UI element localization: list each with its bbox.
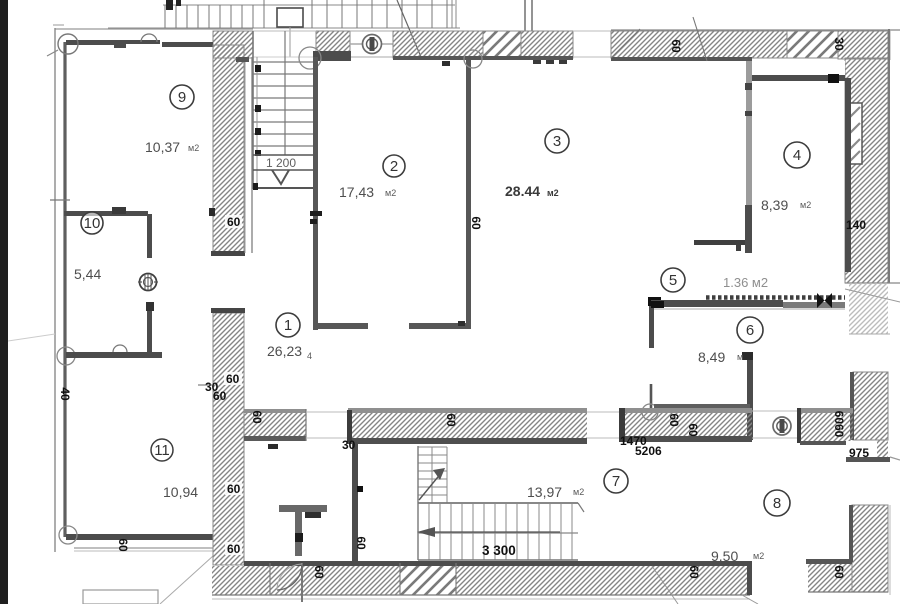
svg-text:4: 4 bbox=[307, 351, 312, 361]
svg-text:11: 11 bbox=[154, 442, 170, 459]
svg-text:1: 1 bbox=[284, 317, 292, 334]
svg-text:м2: м2 bbox=[573, 487, 584, 497]
svg-text:2: 2 bbox=[390, 158, 398, 175]
svg-text:м2: м2 bbox=[188, 143, 199, 153]
svg-text:13,97: 13,97 bbox=[527, 484, 562, 500]
svg-text:28.44: 28.44 bbox=[505, 183, 540, 199]
svg-text:26,23: 26,23 bbox=[267, 343, 302, 359]
svg-text:м2: м2 bbox=[547, 188, 559, 198]
svg-text:м2: м2 bbox=[753, 551, 764, 561]
svg-text:5,44: 5,44 bbox=[74, 266, 101, 282]
svg-text:м2: м2 bbox=[385, 188, 396, 198]
svg-text:1.36 м2: 1.36 м2 bbox=[723, 275, 768, 290]
svg-text:1 200: 1 200 bbox=[266, 156, 296, 170]
svg-text:8,39: 8,39 bbox=[761, 197, 788, 213]
svg-text:60: 60 bbox=[469, 216, 483, 230]
svg-text:7: 7 bbox=[612, 473, 620, 490]
svg-text:60: 60 bbox=[213, 389, 227, 403]
svg-text:60: 60 bbox=[669, 39, 683, 53]
svg-text:60: 60 bbox=[250, 410, 264, 424]
svg-text:17,43: 17,43 bbox=[339, 184, 374, 200]
svg-text:60: 60 bbox=[226, 372, 240, 386]
svg-text:9,50: 9,50 bbox=[711, 548, 738, 564]
svg-text:60: 60 bbox=[227, 482, 241, 496]
svg-text:м2: м2 bbox=[800, 200, 811, 210]
svg-text:6060: 6060 bbox=[832, 411, 846, 438]
svg-text:3: 3 bbox=[553, 133, 561, 150]
svg-text:60: 60 bbox=[832, 565, 846, 579]
svg-text:10,37: 10,37 bbox=[145, 139, 180, 155]
svg-text:м: м bbox=[737, 352, 743, 362]
svg-text:4: 4 bbox=[793, 147, 801, 164]
svg-text:10: 10 bbox=[84, 215, 101, 232]
svg-text:30: 30 bbox=[832, 37, 846, 51]
svg-text:60: 60 bbox=[227, 542, 241, 556]
svg-text:60: 60 bbox=[116, 538, 130, 552]
svg-text:5: 5 bbox=[669, 272, 677, 289]
svg-text:60: 60 bbox=[444, 413, 458, 427]
svg-text:60: 60 bbox=[687, 565, 701, 579]
svg-text:8: 8 bbox=[773, 495, 781, 512]
svg-text:60: 60 bbox=[686, 423, 700, 437]
svg-text:10,94: 10,94 bbox=[163, 484, 198, 500]
svg-text:975: 975 bbox=[849, 446, 869, 460]
svg-text:30: 30 bbox=[342, 438, 356, 452]
svg-text:60: 60 bbox=[312, 565, 326, 579]
svg-text:8,49: 8,49 bbox=[698, 349, 725, 365]
svg-text:60: 60 bbox=[227, 215, 241, 229]
svg-text:6: 6 bbox=[746, 322, 754, 339]
svg-text:9: 9 bbox=[178, 89, 186, 106]
svg-text:3 300: 3 300 bbox=[482, 543, 516, 558]
svg-text:60: 60 bbox=[667, 413, 681, 427]
svg-text:5206: 5206 bbox=[635, 444, 662, 458]
svg-text:140: 140 bbox=[846, 218, 866, 232]
svg-text:60: 60 bbox=[354, 536, 368, 550]
svg-text:40: 40 bbox=[58, 387, 72, 401]
